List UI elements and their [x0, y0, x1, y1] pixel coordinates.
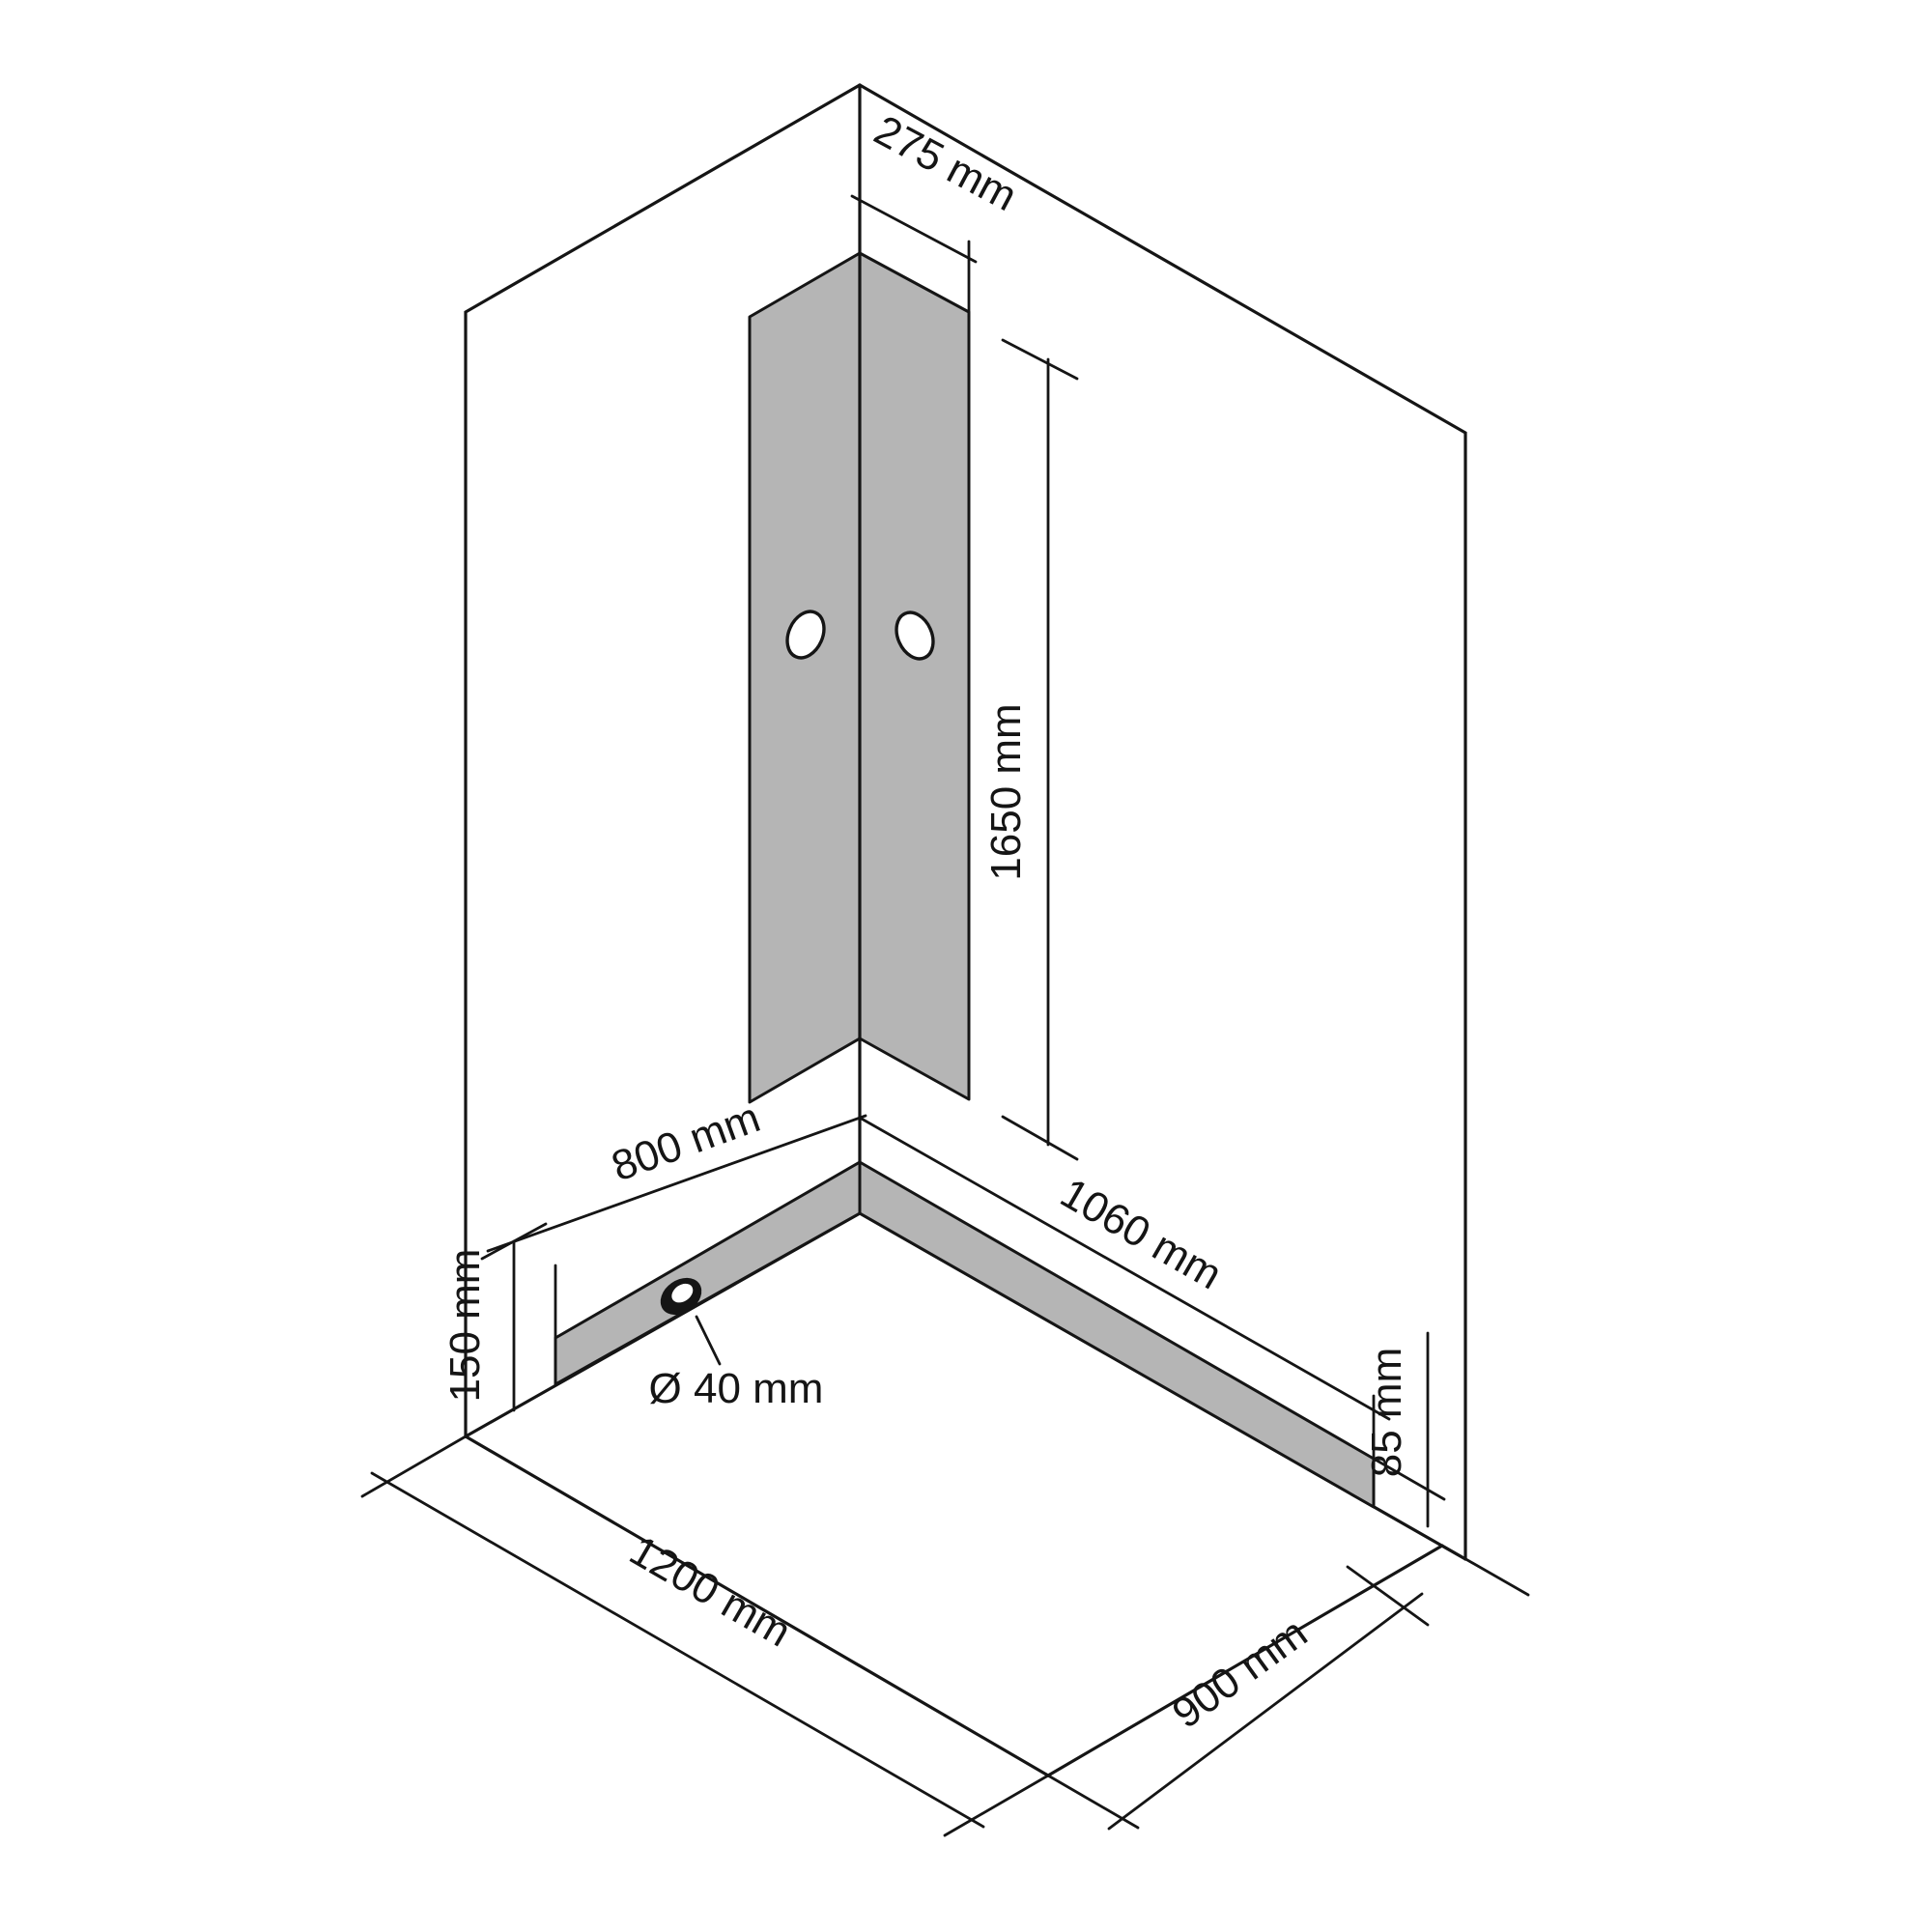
floor-front-extension-right — [1048, 1776, 1138, 1828]
drain-hole: Ø 40 mm — [649, 1270, 824, 1412]
left-wall-strip — [555, 1162, 860, 1384]
wall-base-strips — [555, 1162, 1374, 1507]
dim-line-275 — [852, 196, 976, 262]
dimension-panel-height: 1650 mm — [982, 340, 1077, 1159]
dim-label-85: 85 mm — [1363, 1348, 1410, 1477]
drain-diameter-label: Ø 40 mm — [649, 1365, 824, 1412]
dim-label-1200: 1200 mm — [622, 1526, 799, 1656]
dim-tick-900-right — [1348, 1567, 1428, 1625]
dim-tick-1650-top — [1003, 340, 1077, 379]
dim-label-1650: 1650 mm — [982, 703, 1030, 880]
dim-label-150: 150 mm — [441, 1249, 489, 1403]
dimension-tray-depth: 900 mm — [1109, 1567, 1428, 1829]
dimension-tray-length: 1200 mm — [372, 1473, 983, 1827]
dimension-right-strip-height: 85 mm — [1363, 1333, 1444, 1526]
dim-line-1200 — [372, 1473, 983, 1827]
dim-label-275: 275 mm — [867, 106, 1024, 220]
dimension-left-strip-height: 150 mm — [441, 1241, 514, 1410]
floor-right-extension — [1442, 1546, 1528, 1595]
floor-left-extension — [362, 1436, 466, 1496]
installation-diagram: Ø 40 mm 275 mm 1650 mm 800 mm 150 mm 106… — [0, 0, 1932, 1932]
floor-front-edges — [466, 1436, 1442, 1776]
dimension-right-strip-length: 1060 mm — [860, 1118, 1389, 1459]
panel-left-face — [750, 253, 860, 1102]
dim-line-1060 — [860, 1118, 1389, 1419]
floor-front-extension-left — [945, 1776, 1048, 1835]
panel-right-face — [860, 253, 969, 1099]
dim-label-900: 900 mm — [1164, 1609, 1316, 1738]
drain-leader-line — [696, 1317, 720, 1364]
dim-label-800: 800 mm — [606, 1094, 766, 1190]
isometric-drawing-canvas: Ø 40 mm 275 mm 1650 mm 800 mm 150 mm 106… — [0, 0, 1932, 1932]
dim-tick-1650-bottom — [1003, 1117, 1077, 1159]
